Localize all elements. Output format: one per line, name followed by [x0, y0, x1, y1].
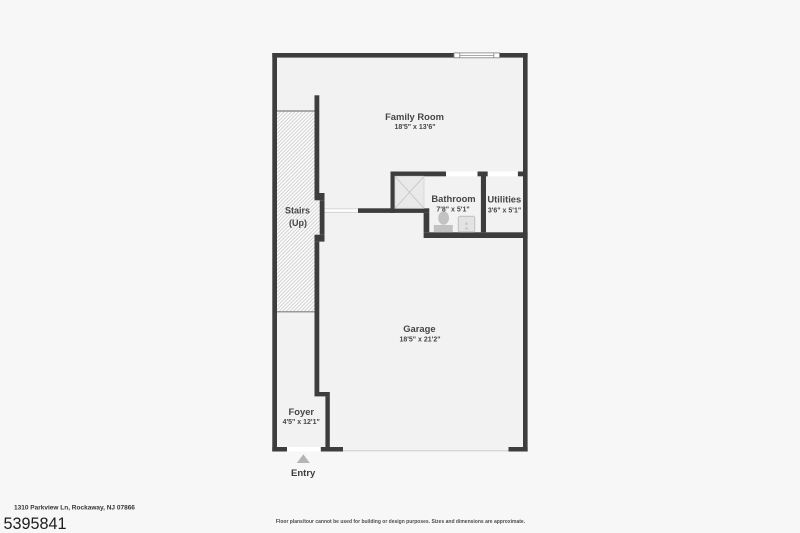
- svg-text:18'5" x 13'6": 18'5" x 13'6": [394, 124, 435, 131]
- svg-text:Bathroom: Bathroom: [431, 193, 475, 204]
- svg-text:Stairs: Stairs: [285, 206, 310, 216]
- svg-text:Family Room: Family Room: [385, 111, 444, 122]
- svg-text:3'6" x 5'1": 3'6" x 5'1": [488, 208, 521, 215]
- svg-text:5395841: 5395841: [4, 515, 67, 533]
- svg-text:(Up): (Up): [289, 218, 307, 228]
- svg-text:18'5" x 21'2": 18'5" x 21'2": [399, 337, 440, 344]
- svg-text:Entry: Entry: [291, 468, 316, 479]
- svg-text:1310 Parkview Ln, Rockaway, NJ: 1310 Parkview Ln, Rockaway, NJ 07866: [14, 505, 135, 512]
- svg-text:Floor plans/tour cannot be use: Floor plans/tour cannot be used for buil…: [276, 519, 526, 525]
- svg-text:7'8" x 5'1": 7'8" x 5'1": [436, 207, 469, 214]
- svg-text:4'5" x 12'1": 4'5" x 12'1": [283, 419, 320, 426]
- svg-text:Utilities: Utilities: [487, 194, 521, 205]
- svg-text:Garage: Garage: [403, 323, 435, 334]
- svg-text:Foyer: Foyer: [289, 406, 315, 417]
